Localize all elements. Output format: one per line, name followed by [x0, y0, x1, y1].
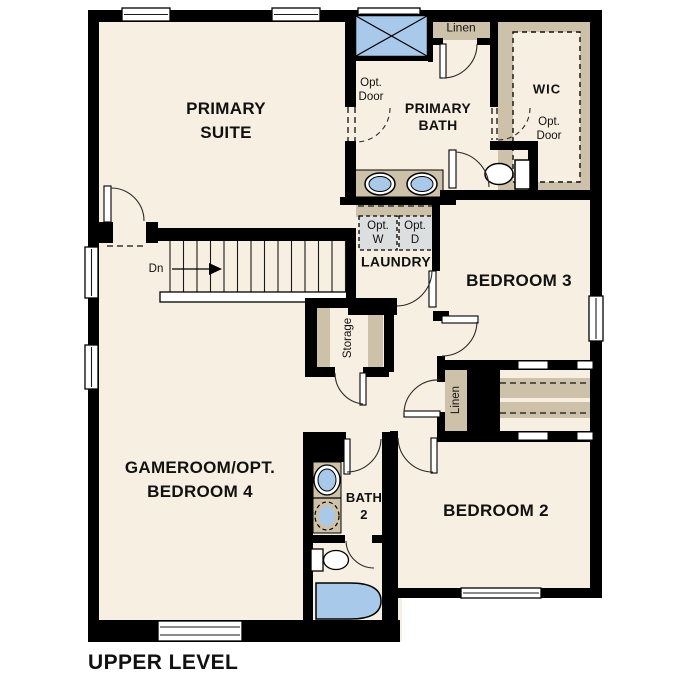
bath2-line1: BATH [346, 489, 382, 506]
closet-opening-bedroom2-right [577, 432, 593, 440]
primary-suite-door [104, 186, 111, 222]
primary-bath-line2: BATH [405, 117, 471, 134]
room-label-wic: WIC [533, 81, 561, 98]
closet-opening-bedroom3-right [577, 361, 593, 369]
laundry-counter [356, 205, 433, 217]
annotation-stairs-down: Dn [149, 262, 164, 276]
room-label-laundry: LAUNDRY [361, 254, 431, 271]
closet-label-linen-top: Linen [446, 22, 475, 35]
primary-sink-left [365, 173, 395, 195]
opt-door-wic-line2: Door [537, 129, 562, 143]
window-right-bedroom3 [589, 296, 603, 341]
room-label-storage: Storage [341, 318, 355, 358]
opt-door-wic-line1: Opt. [537, 115, 562, 129]
opt-door-bath-line2: Door [359, 90, 384, 104]
exterior-mask [402, 598, 687, 687]
bedroom2-closet-shelf [500, 402, 593, 418]
primary-toilet-room-door [449, 150, 456, 188]
window-top-2 [272, 8, 320, 21]
gameroom-line1: GAMEROOM/OPT. [125, 456, 275, 480]
window-left-2 [85, 345, 98, 389]
opt-door-bath-line1: Opt. [359, 76, 384, 90]
annotation-optional-washer: Opt. W [367, 219, 389, 247]
storage-door [360, 373, 366, 405]
closet-opening-bedroom3 [518, 361, 548, 369]
floor-plan: PRIMARY SUITE Linen Opt. Door PRIMARY BA… [0, 0, 687, 687]
opt-dryer-line1: Opt. [404, 219, 426, 233]
linen-top-door [440, 44, 446, 78]
primary-bath-line1: PRIMARY [405, 100, 471, 117]
room-label-bath-2: BATH 2 [346, 489, 382, 523]
bath2-door [344, 439, 350, 474]
primary-suite-line2: SUITE [186, 121, 266, 145]
closet-opening-bedroom2 [518, 432, 548, 440]
window-left-1 [85, 247, 98, 298]
bathtub [316, 583, 381, 619]
bath2-toilet [311, 549, 349, 571]
opt-dryer-line2: D [404, 233, 426, 247]
annotation-optional-dryer: Opt. D [404, 219, 426, 247]
window-bottom-bedroom2 [461, 588, 541, 598]
room-label-bedroom-2: BEDROOM 2 [443, 499, 549, 523]
laundry-door [429, 271, 436, 307]
annotation-opt-door-wic: Opt. Door [537, 115, 562, 143]
window-bottom-gameroom [158, 621, 242, 641]
bedroom3-door [442, 316, 478, 323]
bedroom3-closet-shelf [500, 378, 593, 398]
gameroom-line2: BEDROOM 4 [125, 480, 275, 504]
bath2-line2: 2 [346, 506, 382, 523]
linen-mid-door [404, 411, 440, 417]
bath2-sink [314, 465, 340, 495]
storage-shelf-right [368, 313, 383, 368]
storage-shelf-left [317, 307, 330, 368]
shower [355, 15, 428, 57]
room-label-gameroom: GAMEROOM/OPT. BEDROOM 4 [125, 456, 275, 504]
annotation-opt-door-bath: Opt. Door [359, 76, 384, 104]
room-label-bedroom-3: BEDROOM 3 [466, 269, 572, 293]
bedroom2-door [431, 438, 437, 473]
room-label-primary-bath: PRIMARY BATH [405, 100, 471, 134]
closet-label-linen-mid: Linen [449, 386, 463, 414]
primary-sink-right [407, 173, 437, 195]
page-title: UPPER LEVEL [88, 651, 238, 675]
opt-washer-line2: W [367, 233, 389, 247]
room-label-primary-suite: PRIMARY SUITE [186, 97, 266, 145]
primary-suite-line1: PRIMARY [186, 97, 266, 121]
opt-washer-line1: Opt. [367, 219, 389, 233]
window-top-1 [122, 8, 170, 21]
